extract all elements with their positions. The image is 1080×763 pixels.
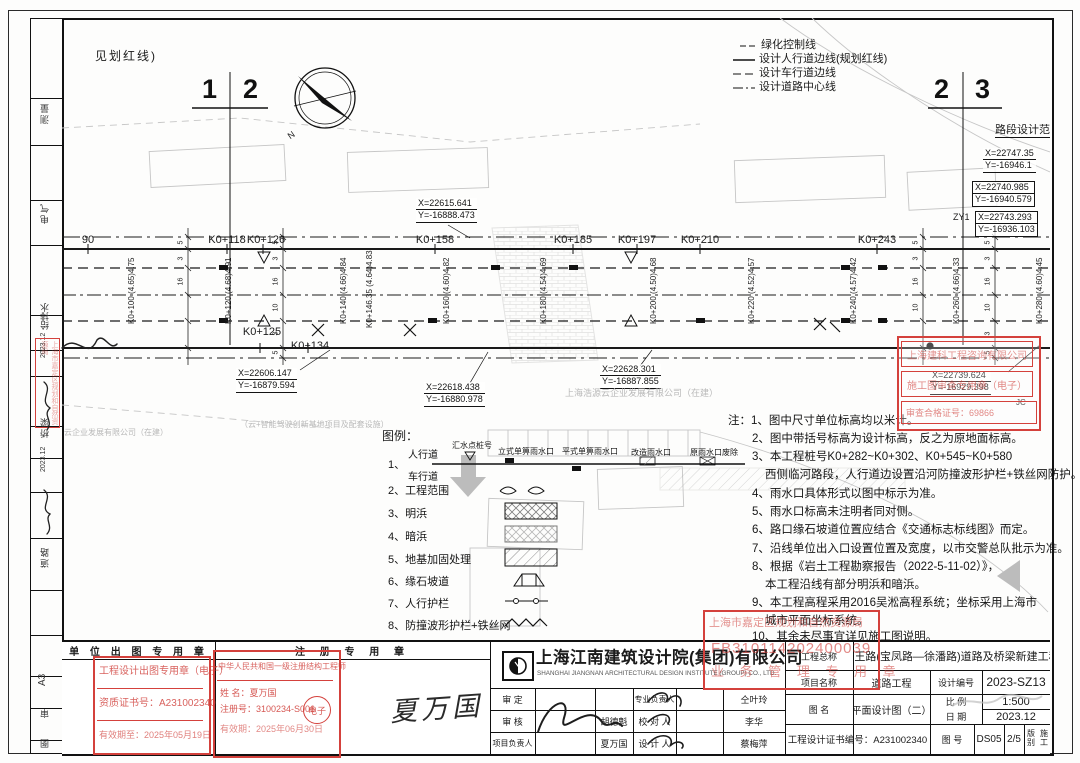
- strip-label-drawing: 图: [38, 726, 51, 748]
- output-seal-cert: 资质证书号：A231002340: [99, 698, 216, 710]
- legend-item1-no: 1、: [388, 456, 405, 472]
- sta-elev-k0220: K0+220 (4.52)4.57: [747, 252, 756, 324]
- legend-item7: 7、人行护栏: [388, 595, 449, 611]
- coord-callout-d: X=22628.301Y=-16887.855: [600, 364, 661, 389]
- dim-3b: 3: [272, 332, 279, 336]
- legend-title: 图例：: [382, 430, 418, 444]
- dim-16b: 16: [177, 278, 184, 286]
- output-seal-stamp: 工程设计出图专用章（电子） 资质证书号：A231002340 有效期至：2025…: [93, 656, 211, 755]
- handwritten-signature: 夏万国: [389, 691, 484, 728]
- review-stamp-company: 上海建科工程咨询有限公司: [907, 347, 1027, 362]
- station-ticks: [88, 244, 877, 353]
- label-drawing-name: 图 名: [785, 694, 853, 724]
- value-drawing-name: 平面设计图（二）: [853, 694, 930, 724]
- planning-stamp-authority: 上海市嘉定区规划和自然资源局: [709, 617, 863, 630]
- coord-zy1: X=22743.293Y=-16936.103: [975, 211, 1038, 237]
- value-date: 2023.12: [982, 709, 1050, 724]
- coord-callout-c: X=22618.438Y=-16880.978: [424, 382, 485, 407]
- segment-design-range: 路段设计范围: [995, 124, 1050, 138]
- dim-10b: 10: [912, 304, 919, 312]
- left-margin-stamp: 上海市嘉定区规划和自然资源局: [35, 338, 60, 428]
- name-lihua: 李华: [723, 710, 785, 732]
- strip-discipline-road: 道路: [38, 528, 51, 568]
- label-checker: 校 对 人: [633, 710, 676, 732]
- note-9: 本工程沿线有部分明浜和暗浜。: [765, 576, 926, 592]
- match-left-a: 1: [202, 74, 217, 105]
- strip-paper-size: A3: [37, 662, 48, 686]
- note-7: 7、沿线单位出入口设置位置及宽度，以市交警总队批示为准。: [752, 540, 1069, 556]
- dim-5e: 5: [984, 241, 991, 245]
- sta-elev-k0146: K0+146.35 (4.64)4.83: [365, 248, 374, 328]
- company-logo: [502, 651, 534, 681]
- planning-stamp-number: FB310114202400039: [711, 640, 871, 657]
- planning-stamp: 上海市嘉定区规划和自然资源局 FB310114202400039 业 务 管 理…: [703, 610, 880, 690]
- red-line-note: 见划红线): [95, 50, 157, 64]
- dim-3d: 3: [912, 257, 919, 261]
- legend-item3: 3、明浜: [388, 505, 427, 521]
- north-compass: [294, 68, 356, 128]
- station-k0210: K0+210: [681, 234, 719, 247]
- station-k0134: K0+134: [291, 340, 329, 353]
- sta-elev-k0140: K0+140 (4.66)4.84: [339, 252, 348, 324]
- dim-3e: 3: [984, 257, 991, 261]
- label-scale: 比 例: [930, 694, 982, 709]
- dim-5d: 5: [912, 241, 919, 245]
- legend-inlet-label-1: 汇水点桩号: [452, 440, 492, 451]
- note-10: 9、本工程高程采用2016吴淞高程系统；坐标采用上海市: [752, 594, 1037, 610]
- note-1: 2、图中带括号标高为设计标高，反之为原地面标高。: [752, 430, 1023, 446]
- dim-3c: 3: [177, 257, 184, 261]
- parcel-text-company2: 云企业发展有限公司（在建）: [64, 428, 168, 437]
- legend-item2: 2、工程范围: [388, 482, 449, 498]
- registered-seal-name: 姓 名：夏万国: [220, 688, 277, 698]
- station-k0158: K0+158: [416, 234, 454, 247]
- dim-5b: 5: [272, 351, 279, 355]
- strip-discipline-electrical: 电气: [38, 190, 51, 224]
- name-caimeiping: 蔡梅萍: [723, 732, 785, 755]
- review-stamp: 上海建科工程咨询有限公司 施工图审查专用章（电子） 审查合格证号：69866: [897, 336, 1041, 431]
- label-fig-no: 图 号: [930, 724, 974, 754]
- label-designer: 设 计 人: [633, 732, 676, 755]
- dim-16c: 16: [912, 278, 919, 286]
- note-8: 8、根据《岩土工程勘察报告（2022-5-11-02）》，: [752, 558, 999, 574]
- station-90: 90: [82, 234, 94, 247]
- match-lines: [192, 72, 1002, 345]
- coord-callout-b: X=22606.147Y=-16879.594: [236, 368, 297, 393]
- strip-date-2: 2023.12: [40, 444, 47, 472]
- match-left-b: 2: [243, 74, 258, 105]
- station-k0243: K0+243: [858, 234, 896, 247]
- name-tongyeling: 仝叶玲: [723, 689, 785, 710]
- station-k0118: K0+118: [208, 234, 245, 247]
- dim-10a: 10: [272, 304, 279, 312]
- gray-left-arrow: [997, 560, 1020, 592]
- drawing-sheet: { "frame": { "top_left_text": "见划红线)", "…: [0, 0, 1080, 763]
- strip-label-review: 审: [38, 696, 51, 718]
- dim-16d: 16: [984, 278, 991, 286]
- review-stamp-cert: 审查合格证号：69866: [906, 406, 994, 419]
- label-project-lead: 项目负责人: [490, 732, 535, 755]
- legend-inlet-label-5: 原雨水口废除: [690, 447, 738, 458]
- match-right-b: 3: [975, 74, 990, 105]
- strip-discipline-survey: 测量: [38, 88, 51, 124]
- sta-elev-k0180: K0+180 (4.54)4.69: [539, 252, 548, 324]
- company-logo-glyph: [508, 656, 528, 676]
- value-fig-page: 2/5: [1004, 724, 1024, 754]
- legend-item4: 4、暗浜: [388, 528, 427, 544]
- label-major-lead: 专业负责人: [633, 689, 676, 710]
- name-hudekui: 胡德魁: [595, 710, 633, 732]
- dim-3f: 3: [984, 332, 991, 336]
- line-legend-carriageway-edge: 设计车行道边线: [759, 67, 836, 80]
- signature-grid: 审 定 专业负责人 仝叶玲 审 核 胡德魁 校 对 人 李华 项目负责人 夏万国…: [490, 688, 785, 755]
- note-2: 3、本工程桩号K0+282~K0+302、K0+545~K0+580: [752, 448, 1012, 464]
- value-edition: 施工: [1038, 724, 1050, 754]
- note-0: 注：1、图中尺寸单位标高均以米计。: [728, 412, 918, 428]
- note-6: 6、路口缘石坡道位置应结合《交通标志标线图》而定。: [752, 521, 1034, 537]
- match-right-a: 2: [934, 74, 949, 105]
- strip-discipline-drainage: 给排水: [38, 300, 51, 330]
- parcel-text-project: （云+智能驾驶创新基地项目及配套设施）: [240, 420, 389, 429]
- dim-16a: 16: [272, 278, 279, 286]
- legend-item5: 5、地基加固处理: [388, 551, 471, 567]
- name-xiawanguo: 夏万国: [595, 732, 633, 755]
- line-legend-green-control: 绿化控制线: [761, 39, 816, 52]
- line-legend-centerline: 设计道路中心线: [759, 81, 836, 94]
- planning-stamp-seal: 业 务 管 理 专 用 章: [711, 665, 902, 680]
- registered-seal-etag: 电子: [303, 696, 331, 724]
- legend-inlet-label-2: 立式单箅雨水口: [498, 446, 554, 457]
- legend-item1-sidewalk: 人行道: [408, 446, 438, 461]
- registered-seal-stamp: 中华人民共和国一级注册结构工程师 姓 名：夏万国 注册号：3100234-S00…: [213, 650, 341, 758]
- label-design-no: 设计编号: [930, 670, 982, 694]
- dim-5a: 5: [272, 241, 279, 245]
- line-legend-samples: [733, 46, 757, 88]
- legend-inlet-label-3: 平式单箅雨水口: [562, 446, 618, 457]
- registered-seal-title: 中华人民共和国一级注册结构工程师: [218, 662, 346, 671]
- left-margin-stamp-text: 上海市嘉定区规划和自然资源局: [39, 341, 59, 425]
- sta-elev-k0260: K0+260 (4.66)4.33: [952, 252, 961, 324]
- note-3: 西侧临河路段，人行道边设置沿河防撞波形护栏+铁丝网防护。: [765, 466, 1080, 482]
- legend-item6: 6、缘石坡道: [388, 573, 449, 589]
- registered-seal-valid: 有效期：2025年06月30日: [220, 724, 323, 734]
- culvert-marks: [312, 318, 933, 349]
- coord-callout-a: X=22615.641Y=-16888.473: [416, 198, 477, 223]
- coord-range-2: X=22740.985Y=-16940.579: [972, 181, 1035, 207]
- station-k0185: K0+185: [554, 234, 592, 247]
- label-shending: 审 定: [490, 689, 535, 710]
- dim-3a: 3: [272, 257, 279, 261]
- label-edition: 版 别: [1024, 724, 1038, 754]
- sta-elev-k0240: K0+240 (4.57)4.42: [849, 252, 858, 324]
- sta-elev-k0160: K0+160 (4.60)4.82: [442, 252, 451, 324]
- label-shenhe: 审 核: [490, 710, 535, 732]
- legend-item1-carriageway: 车行道: [408, 468, 438, 483]
- sta-elev-k0120: K0+120 (4.68)4.91: [224, 252, 233, 324]
- sta-elev-k0280: K0+280 (4.60)4.45: [1035, 252, 1044, 324]
- review-stamp-seal: 施工图审查专用章（电子）: [907, 377, 1027, 392]
- value-scale: 1:500: [982, 694, 1050, 709]
- registered-seal-regno: 注册号：3100234-S006: [220, 704, 315, 714]
- note-4: 4、雨水口具体形式以图中标示为准。: [752, 485, 942, 501]
- output-seal-title: 工程设计出图专用章（电子）: [99, 666, 229, 678]
- legend-item8: 8、防撞波形护栏+铁丝网: [388, 617, 511, 633]
- zy1-label: ZY1: [953, 212, 970, 222]
- note-5: 5、雨水口标高未注明者同对侧。: [752, 503, 919, 519]
- dim-5c: 5: [177, 241, 184, 245]
- station-k0197: K0+197: [618, 234, 656, 247]
- value-design-no: 2023-SZ13: [982, 670, 1050, 694]
- cert-line: 工程设计证书编号：A231002340: [785, 724, 930, 754]
- coord-range-1: X=22747.35Y=-16946.1: [983, 148, 1036, 173]
- value-fig-no: DS05: [974, 724, 1004, 754]
- label-date: 日 期: [930, 709, 982, 724]
- sta-elev-k0100: K0+100 (4.65)4.75: [127, 252, 136, 324]
- dim-10c: 10: [984, 304, 991, 312]
- output-seal-valid: 有效期至：2025年05月19日: [99, 730, 211, 740]
- line-legend-sidewalk-edge: 设计人行道边线(规划红线): [759, 53, 887, 66]
- gray-down-arrow: [450, 455, 486, 497]
- sta-elev-k0200: K0+200 (4.50)4.68: [649, 252, 658, 324]
- legend-inlet-label-4: 改造雨水口: [631, 447, 671, 458]
- parcel-text-company: 上海浩源云企业发展有限公司（在建）: [565, 388, 718, 398]
